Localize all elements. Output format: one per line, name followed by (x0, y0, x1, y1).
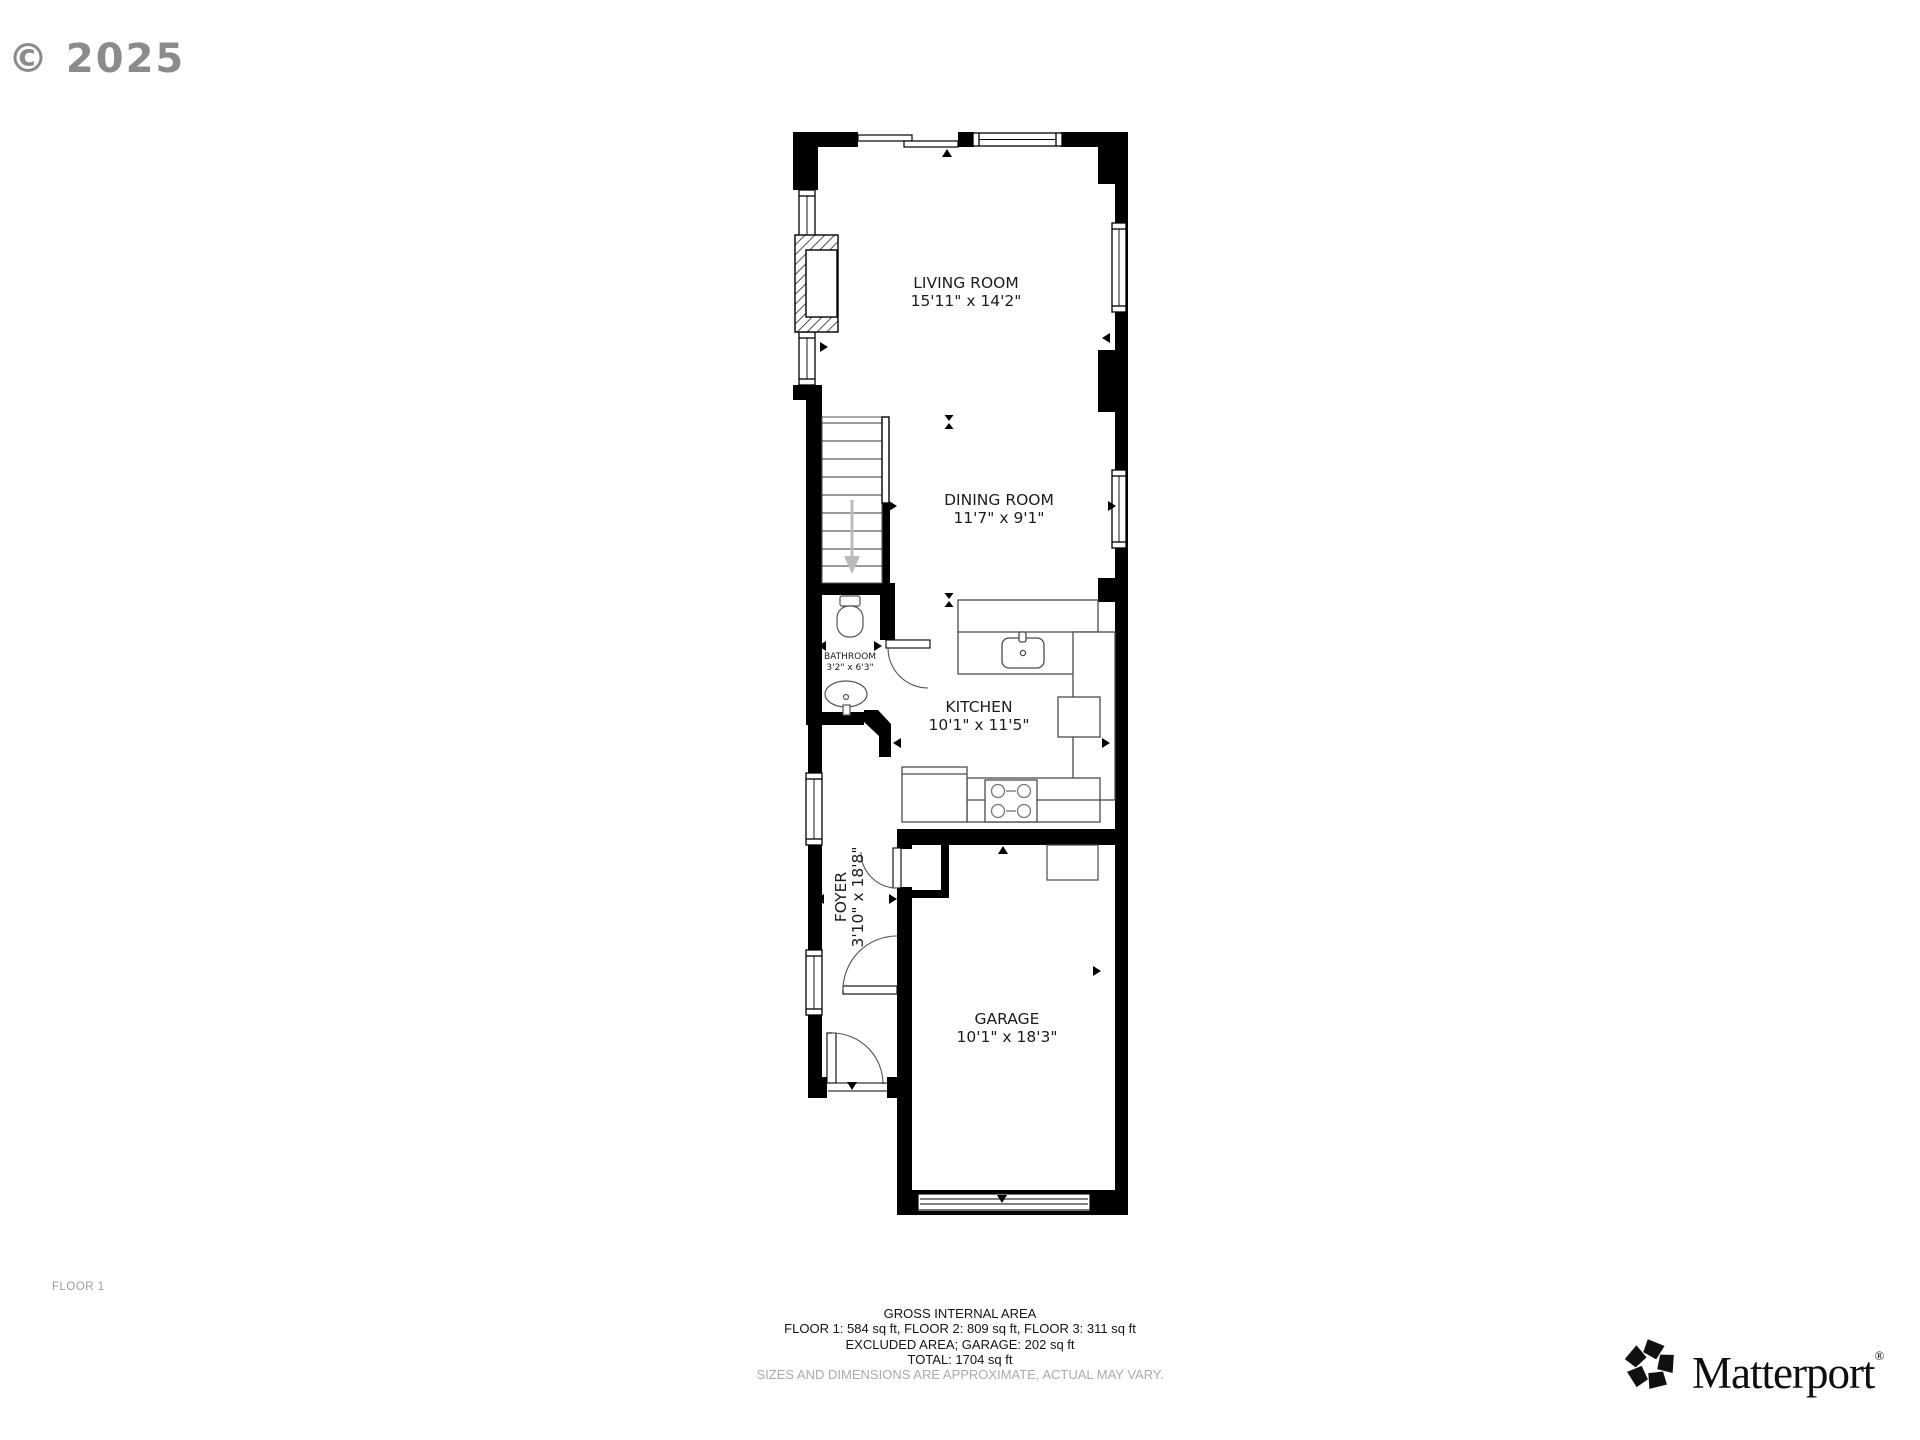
living-room-dims: 15'11" x 14'2" (911, 292, 1022, 310)
window-icon (799, 190, 815, 242)
window-icon (973, 133, 1062, 146)
fireplace-icon (795, 235, 838, 332)
window-icon (806, 773, 822, 845)
foyer-dims: 3'10" x 18'8" (849, 847, 867, 948)
garage-label: GARAGE (975, 1010, 1040, 1028)
window-icon (806, 950, 822, 1015)
matterport-pinwheel-icon (1622, 1337, 1678, 1393)
garage-storage-icon (1047, 845, 1098, 880)
floor-number-label: FLOOR 1 (52, 1281, 105, 1293)
dining-room-dims: 11'7" x 9'1" (953, 509, 1044, 527)
window-icon (799, 332, 815, 385)
toilet-icon (837, 596, 863, 637)
kitchen-label: KITCHEN (945, 698, 1012, 716)
living-room-label: LIVING ROOM (913, 274, 1018, 292)
closet-door-icon (861, 848, 901, 888)
sliding-door-icon (858, 135, 958, 147)
window-icon (1112, 470, 1126, 548)
kitchen-sink-icon (1002, 632, 1044, 668)
bathroom-door-icon (886, 640, 930, 688)
copyright-watermark: © 2025 (8, 36, 185, 82)
window-icon (1112, 223, 1126, 312)
garage-dims: 10'1" x 18'3" (957, 1028, 1058, 1046)
stove-icon (985, 780, 1037, 822)
bathroom-label: BATHROOM (824, 652, 876, 662)
floor-plan-drawing: LIVING ROOM 15'11" x 14'2" DINING ROOM 1… (780, 110, 1156, 1230)
floor-plan-page: © 2025 FLOOR 1 (0, 0, 1920, 1440)
foyer-label: FOYER (832, 872, 850, 923)
area-summary-title: GROSS INTERNAL AREA (0, 1306, 1920, 1321)
dining-room-label: DINING ROOM (944, 491, 1054, 509)
fridge-icon (1058, 697, 1100, 737)
stairs-icon (822, 417, 889, 583)
bathroom-sink-icon (825, 681, 867, 715)
kitchen-dims: 10'1" x 11'5" (929, 716, 1030, 734)
registered-mark: ® (1874, 1348, 1884, 1363)
bathroom-dims: 3'2" x 6'3" (826, 663, 873, 673)
matterport-wordmark: Matterport® (1692, 1326, 1884, 1403)
refrigerator-icon (902, 767, 967, 822)
matterport-logo: Matterport® (1622, 1326, 1884, 1403)
